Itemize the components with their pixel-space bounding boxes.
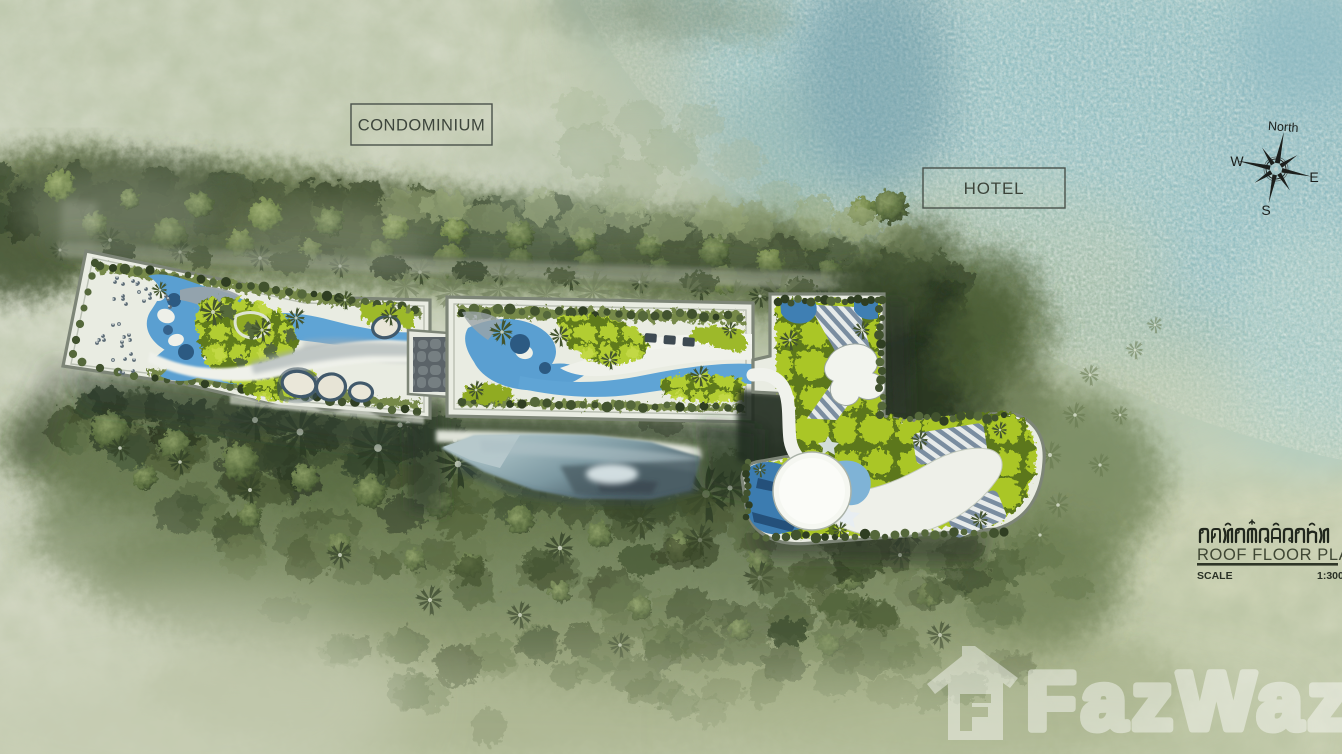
svg-text:North: North	[1268, 119, 1300, 135]
svg-text:S: S	[1261, 202, 1270, 218]
svg-text:FazWaz: FazWaz	[1026, 656, 1342, 747]
svg-text:W: W	[1230, 153, 1244, 169]
svg-text:ROOF FLOOR PLAN: ROOF FLOOR PLAN	[1197, 546, 1342, 564]
svg-text:SCALE: SCALE	[1197, 570, 1233, 582]
svg-text:HOTEL: HOTEL	[964, 179, 1025, 198]
svg-text:E: E	[1309, 169, 1318, 185]
svg-text:CONDOMINIUM: CONDOMINIUM	[358, 117, 485, 135]
svg-text:1:300: 1:300	[1317, 570, 1342, 582]
